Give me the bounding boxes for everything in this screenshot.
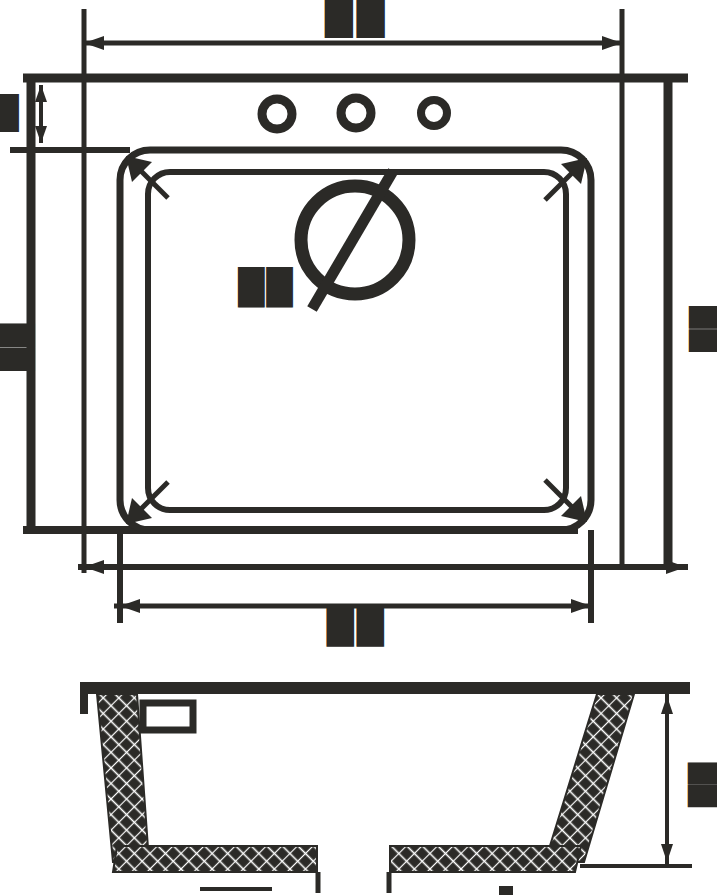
- faucet-hole-3: [421, 100, 447, 126]
- dimension-label-height-left: ██: [0, 323, 35, 372]
- dimension-rim-offset-left: █: [0, 85, 47, 143]
- faucet-hole-2: [341, 98, 371, 128]
- sink-section-view: ██: [80, 688, 717, 895]
- dimension-label-height-right: ██: [688, 305, 717, 353]
- bowl-outline: [120, 150, 591, 530]
- sink-technical-drawing: ██ ██ █ ██: [0, 0, 717, 895]
- dimension-bottom-overall: [78, 560, 688, 574]
- dimension-bottom-bowl-width: ██: [114, 530, 591, 647]
- dimension-label-rim-offset: █: [0, 93, 19, 132]
- faucet-hole-1: [262, 99, 292, 129]
- drain-dimension-label: ██: [237, 267, 294, 308]
- section-drain-stub: [200, 872, 513, 895]
- dimension-label-bowl-width: ██: [326, 605, 387, 647]
- drawing-canvas: ██ ██ █ ██: [0, 0, 717, 895]
- bowl-corner-radius-arrows: [126, 156, 587, 524]
- dimension-label-top-width: ██: [324, 0, 388, 38]
- section-bottom-right: [390, 846, 581, 872]
- dimension-label-section-depth: ██: [687, 762, 717, 808]
- sink-top-view: ██ ██ █ ██: [0, 0, 717, 647]
- section-right-wall: [545, 694, 634, 862]
- section-overflow-rect: [143, 703, 193, 730]
- section-bottom-left: [113, 846, 317, 872]
